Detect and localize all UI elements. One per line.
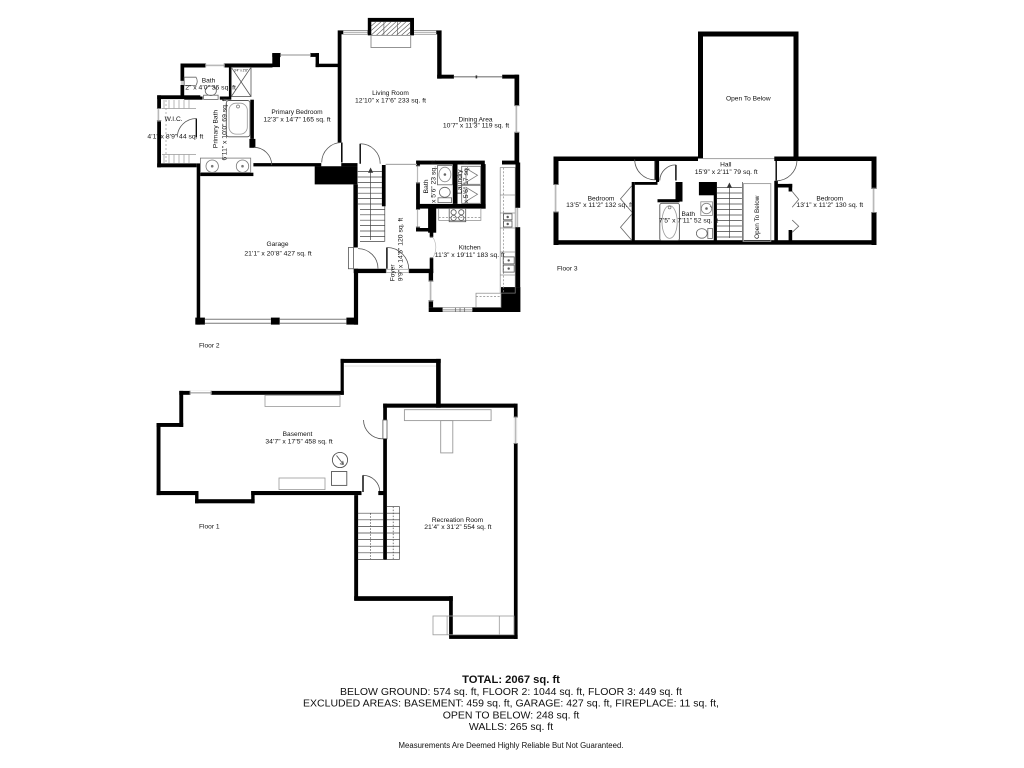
svg-text:BELOW GROUND: 574 sq. ft, FLOO: BELOW GROUND: 574 sq. ft, FLOOR 2: 1044 … [340, 686, 682, 698]
svg-text:Living Room: Living Room [372, 90, 409, 97]
svg-text:2” x 4’0” 36 sq. ft: 2” x 4’0” 36 sq. ft [185, 84, 236, 91]
svg-text:11’3” x 19’11” 183 sq. ft: 11’3” x 19’11” 183 sq. ft [435, 252, 505, 259]
svg-text:Bath: Bath [423, 179, 430, 193]
svg-text:Hall: Hall [720, 162, 732, 169]
svg-text:WALLS: 265 sq. ft: WALLS: 265 sq. ft [469, 721, 553, 733]
svg-text:Primary Bedroom: Primary Bedroom [271, 109, 323, 116]
svg-text:x 5’6” 23 sq. ft: x 5’6” 23 sq. ft [430, 160, 437, 203]
svg-text:Open To Below: Open To Below [754, 195, 761, 239]
svg-text:6’11” x 10’0” 69 sq. ft: 6’11” x 10’0” 69 sq. ft [221, 97, 228, 160]
svg-text:Measurements Are Deemed Highly: Measurements Are Deemed Highly Reliable … [399, 741, 624, 750]
svg-text:34’7” x 17’5” 458 sq. ft: 34’7” x 17’5” 458 sq. ft [265, 438, 332, 445]
svg-text:Foyer: Foyer [389, 264, 396, 282]
svg-text:W.I.C.: W.I.C. [165, 116, 183, 123]
svg-text:Floor 3: Floor 3 [557, 266, 578, 273]
svg-text:Floor 2: Floor 2 [199, 343, 220, 350]
svg-text:Garage: Garage [267, 241, 289, 248]
svg-text:Recreation Room: Recreation Room [432, 517, 484, 524]
svg-text:TOTAL: 2067 sq. ft: TOTAL: 2067 sq. ft [462, 674, 560, 686]
svg-text:Open To Below: Open To Below [726, 95, 771, 102]
svg-text:3’4” x 2’8”: 3’4” x 2’8” [234, 69, 248, 73]
svg-text:21’4” x 31’2” 554 sq. ft: 21’4” x 31’2” 554 sq. ft [424, 524, 491, 531]
svg-text:10’7” x 11’3” 119 sq. ft: 10’7” x 11’3” 119 sq. ft [443, 123, 509, 130]
svg-text:x 5’6” 17 sq. ft: x 5’6” 17 sq. ft [463, 161, 470, 204]
svg-text:13’1” x 11’2” 130 sq. ft: 13’1” x 11’2” 130 sq. ft [796, 202, 863, 209]
svg-text:4’1” x 8’9” 44 sq. ft: 4’1” x 8’9” 44 sq. ft [147, 133, 203, 140]
svg-text:21’1” x 20’8” 427 sq. ft: 21’1” x 20’8” 427 sq. ft [244, 251, 311, 258]
svg-text:15’9” x 2’11” 79 sq. ft: 15’9” x 2’11” 79 sq. ft [695, 169, 758, 176]
svg-text:Basement: Basement [283, 431, 313, 438]
svg-text:EXCLUDED AREAS: BASEMENT: 459: EXCLUDED AREAS: BASEMENT: 459 sq. ft, GA… [303, 698, 719, 710]
svg-text:Floor 1: Floor 1 [199, 524, 220, 531]
svg-text:12’3” x 14’7” 165 sq. ft: 12’3” x 14’7” 165 sq. ft [263, 117, 330, 124]
svg-text:Kitchen: Kitchen [459, 245, 481, 252]
svg-text:Primary Bath: Primary Bath [212, 110, 219, 148]
svg-text:12’10” x 17’6” 233 sq. ft: 12’10” x 17’6” 233 sq. ft [355, 97, 426, 104]
svg-text:9’9” x 14’5” 120 sq. ft: 9’9” x 14’5” 120 sq. ft [398, 218, 405, 282]
svg-text:7’5” x 7’11” 52 sq. ft: 7’5” x 7’11” 52 sq. ft [659, 217, 718, 224]
svg-text:13’5” x 11’2” 132 sq. ft: 13’5” x 11’2” 132 sq. ft [566, 202, 633, 209]
svg-text:OPEN TO BELOW: 248 sq. ft: OPEN TO BELOW: 248 sq. ft [443, 709, 580, 721]
